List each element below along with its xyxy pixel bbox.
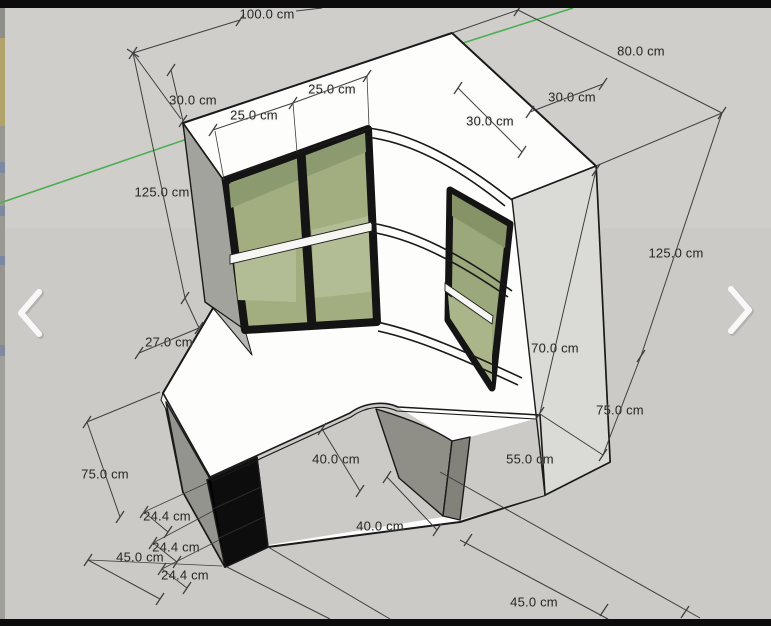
- chevron-left-icon: [8, 281, 52, 345]
- next-image-button[interactable]: [718, 278, 762, 342]
- adjacent-image-sliver: [0, 8, 5, 619]
- image-viewer: 100.0 cm30.0 cm25.0 cm25.0 cm125.0 cm27.…: [0, 0, 771, 626]
- chevron-right-icon: [718, 278, 762, 342]
- model-viewport[interactable]: [0, 0, 771, 626]
- previous-image-button[interactable]: [8, 281, 52, 345]
- letterbox-top-bar: [0, 0, 771, 8]
- letterbox-bottom-bar: [0, 619, 771, 626]
